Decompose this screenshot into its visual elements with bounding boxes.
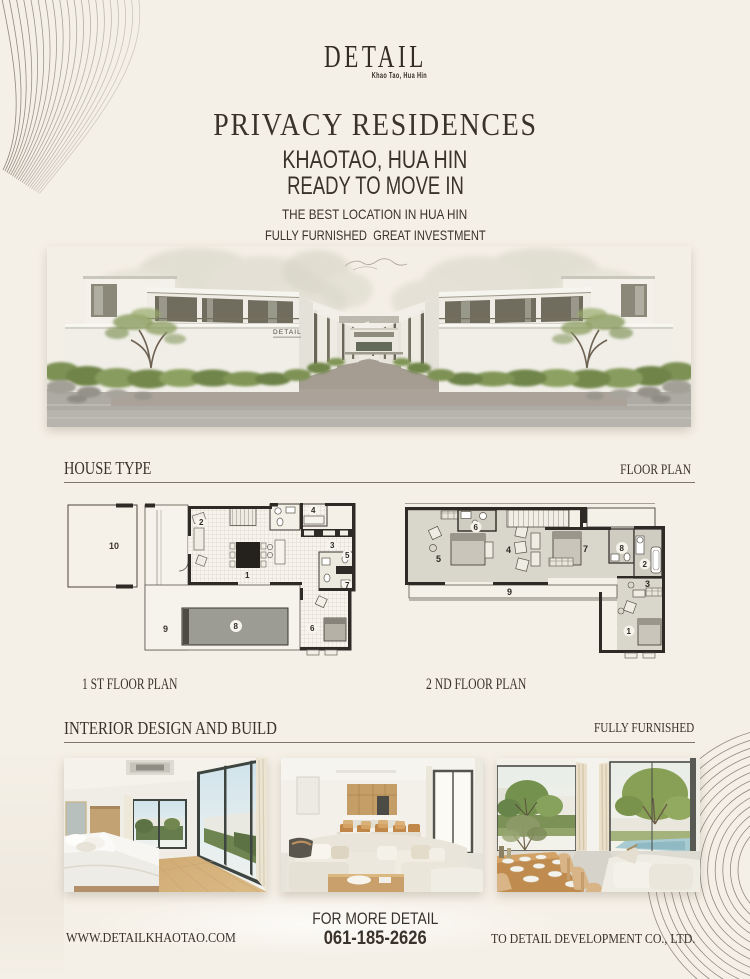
svg-text:5: 5 (345, 551, 350, 560)
svg-text:6: 6 (310, 624, 315, 633)
svg-text:3: 3 (330, 541, 335, 550)
svg-text:5: 5 (436, 554, 441, 564)
svg-text:2: 2 (643, 560, 648, 569)
svg-text:7: 7 (583, 544, 588, 554)
svg-text:DETAIL: DETAIL (273, 329, 302, 336)
svg-text:6: 6 (474, 523, 479, 532)
svg-text:8: 8 (234, 622, 239, 631)
svg-text:1: 1 (627, 627, 632, 636)
svg-text:2: 2 (199, 518, 204, 527)
svg-text:9: 9 (507, 587, 512, 597)
svg-text:9: 9 (163, 624, 168, 634)
svg-text:8: 8 (620, 544, 625, 553)
svg-text:3: 3 (645, 579, 650, 589)
svg-text:4: 4 (311, 506, 316, 515)
svg-text:10: 10 (109, 541, 119, 551)
svg-text:1: 1 (245, 571, 250, 580)
svg-text:4: 4 (506, 545, 511, 555)
